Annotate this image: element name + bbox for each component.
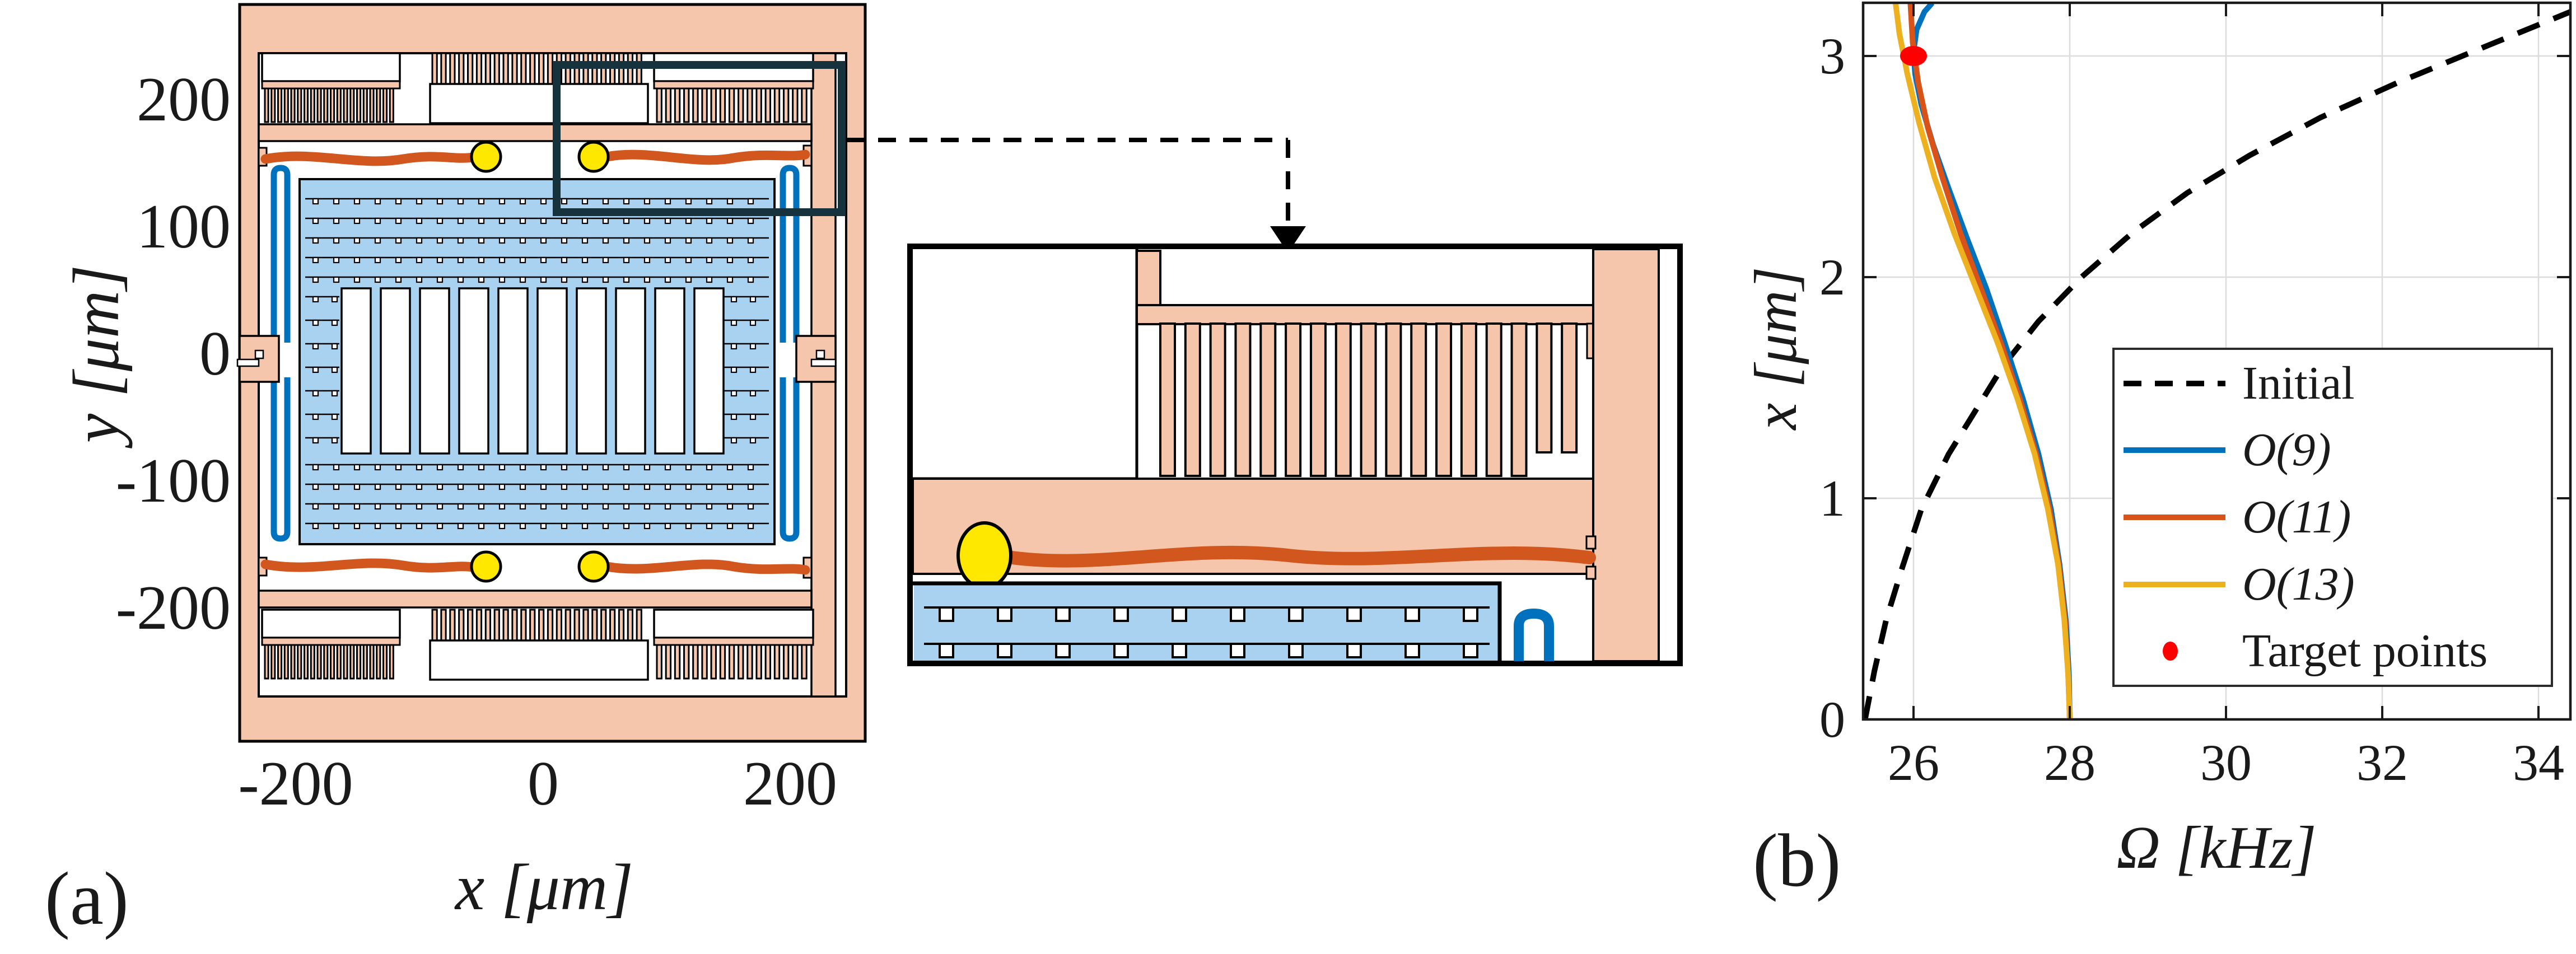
panel-b-x-tick-28: 28	[2044, 737, 2096, 788]
panel-b-y-tick-1: 1	[1733, 473, 1845, 524]
panel-a-letter: (a)	[45, 861, 129, 937]
panel-b-y-tick-0: 0	[1733, 694, 1845, 745]
legend-yellow-line-sample	[2124, 582, 2234, 587]
panel-b-x-tick-26: 26	[1888, 737, 1939, 788]
panel-b-x-axis-label: Ω [kHz]	[2116, 818, 2316, 878]
legend-label: Initial	[2242, 360, 2355, 407]
curve-o-9-	[1914, 3, 2070, 719]
legend-label: O(9)	[2242, 427, 2331, 474]
panel-a-y-tick-0: 0	[63, 322, 231, 385]
panel-a-y-tick-100: 100	[63, 195, 231, 258]
legend-red-dot-sample	[2124, 642, 2234, 661]
panel-a-y-tick-200: 200	[63, 68, 231, 131]
legend-label: O(13)	[2242, 561, 2355, 608]
legend-row-o9: O(9)	[2115, 418, 2551, 483]
panel-b-x-tick-32: 32	[2356, 737, 2408, 788]
panel-a-x-tick-200: 200	[743, 752, 837, 815]
panel-a-y-tick--200: -200	[63, 577, 231, 639]
legend-blue-line-sample	[2124, 447, 2234, 453]
figure-canvas: (a) x [μm] y [μm] 2001000-100-200-200020…	[0, 0, 2576, 954]
curve-o-11-	[1910, 3, 2070, 719]
target-point-marker	[1900, 46, 1927, 66]
panel-a-x-tick--200: -200	[238, 752, 353, 815]
panel-a-x-axis-label: x [μm]	[455, 854, 633, 920]
legend-label: Target points	[2242, 628, 2488, 675]
legend-dashed-line-sample	[2124, 381, 2234, 386]
plot-legend: Initial O(9) O(11) O(13) Target points	[2112, 348, 2553, 687]
panel-b-letter: (b)	[1753, 823, 1841, 899]
panel-b-x-tick-34: 34	[2513, 737, 2564, 788]
panel-b-y-tick-2: 2	[1733, 251, 1845, 303]
legend-row-target: Target points	[2115, 619, 2551, 684]
legend-orange-line-sample	[2124, 515, 2234, 520]
panel-b-y-tick-3: 3	[1733, 30, 1845, 82]
panel-b-x-tick-30: 30	[2200, 737, 2252, 788]
legend-row-o13: O(13)	[2115, 552, 2551, 617]
panel-a-x-tick-0: 0	[528, 752, 559, 815]
panel-a-y-tick--100: -100	[63, 450, 231, 512]
legend-row-o11: O(11)	[2115, 485, 2551, 550]
legend-row-initial: Initial	[2115, 351, 2551, 416]
legend-label: O(11)	[2242, 494, 2351, 541]
